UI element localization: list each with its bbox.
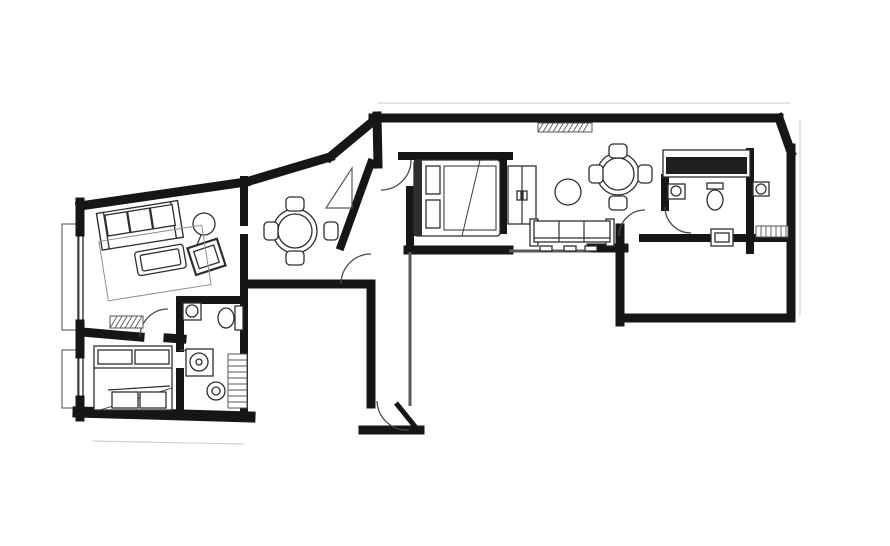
bed-2-part: [98, 350, 132, 364]
wardrobe: [508, 166, 536, 224]
corner-cabinet-part: [326, 168, 352, 208]
bed-2-part: [135, 350, 169, 364]
toilet-left-part: [235, 306, 243, 330]
water-heater-part: [212, 387, 220, 395]
pouf-part: [555, 179, 581, 205]
washbasin-right: [668, 184, 685, 199]
washing-machine-left: [186, 349, 213, 376]
washbasin-left: [183, 303, 201, 320]
bed-1-part: [426, 166, 440, 194]
pouf: [555, 179, 581, 205]
dining-chairs-part: [264, 222, 278, 240]
floor-lamp-part: [193, 213, 215, 235]
dining-chairs-2-part: [638, 165, 652, 183]
washing-machine-left-part: [196, 359, 202, 365]
wardrobe-part: [523, 191, 527, 200]
radiator-top: [538, 123, 592, 132]
sofa-2-part: [540, 246, 552, 251]
door-arc-bedroom-1: [381, 160, 411, 190]
sofa-living-part: [128, 208, 153, 232]
dining-table-part: [278, 214, 312, 248]
window-sill: [62, 224, 79, 330]
wall: [78, 412, 250, 417]
dining-table: [273, 209, 317, 253]
kitchen-counter-part: [666, 157, 747, 174]
sofa-living-part: [105, 212, 130, 236]
radiator-living: [110, 316, 143, 328]
sofa-2-part: [534, 221, 610, 242]
dining-chairs-part: [286, 197, 304, 211]
wall: [82, 332, 140, 337]
wall: [377, 116, 378, 164]
bed-1-part: [414, 160, 422, 236]
wall: [330, 118, 377, 157]
guide-line: [92, 441, 244, 444]
dining-chairs-2-part: [609, 144, 627, 158]
dining-chairs-2-part: [589, 165, 603, 183]
sofa-living-part: [150, 205, 175, 229]
windows-layer: [62, 224, 83, 408]
dining-chairs-2-part: [609, 196, 627, 210]
floor-plan-page: [0, 0, 890, 546]
wall: [168, 338, 182, 339]
bed-1-part: [444, 166, 496, 230]
sofa-living: [97, 201, 184, 250]
wall: [246, 157, 330, 182]
door-arc-bedroom-2: [140, 309, 168, 337]
toilet-left-part: [218, 308, 234, 328]
washbasin-right-2: [753, 182, 769, 196]
corner-cabinet: [326, 168, 352, 208]
toilet-right-part: [707, 183, 723, 189]
toilet-left: [218, 306, 243, 330]
floor-plan-drawing: [0, 0, 890, 546]
storage-bench-part: [140, 392, 166, 408]
furniture-layer: [94, 123, 788, 410]
bed-1-part: [426, 200, 440, 228]
washing-machine-right: [711, 229, 733, 246]
shelving-left: [228, 354, 247, 408]
sofa-2-part: [585, 246, 597, 251]
toilet-right: [707, 183, 723, 210]
dining-table-2-part: [602, 158, 634, 190]
wall: [341, 163, 371, 246]
shelving-left-hatch-box: [228, 354, 247, 408]
coffee-table: [134, 244, 186, 276]
wardrobe-part: [517, 191, 521, 200]
storage-bench-part: [112, 392, 138, 408]
sofa-2-part: [564, 246, 576, 251]
kitchen-counter: [663, 150, 750, 177]
washing-machine-right-part: [715, 233, 729, 242]
washbasin-right-2-part: [756, 184, 766, 194]
dining-chairs-part: [324, 222, 338, 240]
bed-1: [414, 160, 500, 236]
washbasin-left-part: [186, 305, 198, 317]
entrance-door-leaf: [396, 403, 417, 429]
toilet-right-part: [707, 190, 723, 210]
water-heater: [207, 382, 225, 400]
shelf-right: [756, 226, 788, 237]
dining-chairs-part: [286, 251, 304, 265]
washbasin-right-part: [671, 186, 681, 196]
